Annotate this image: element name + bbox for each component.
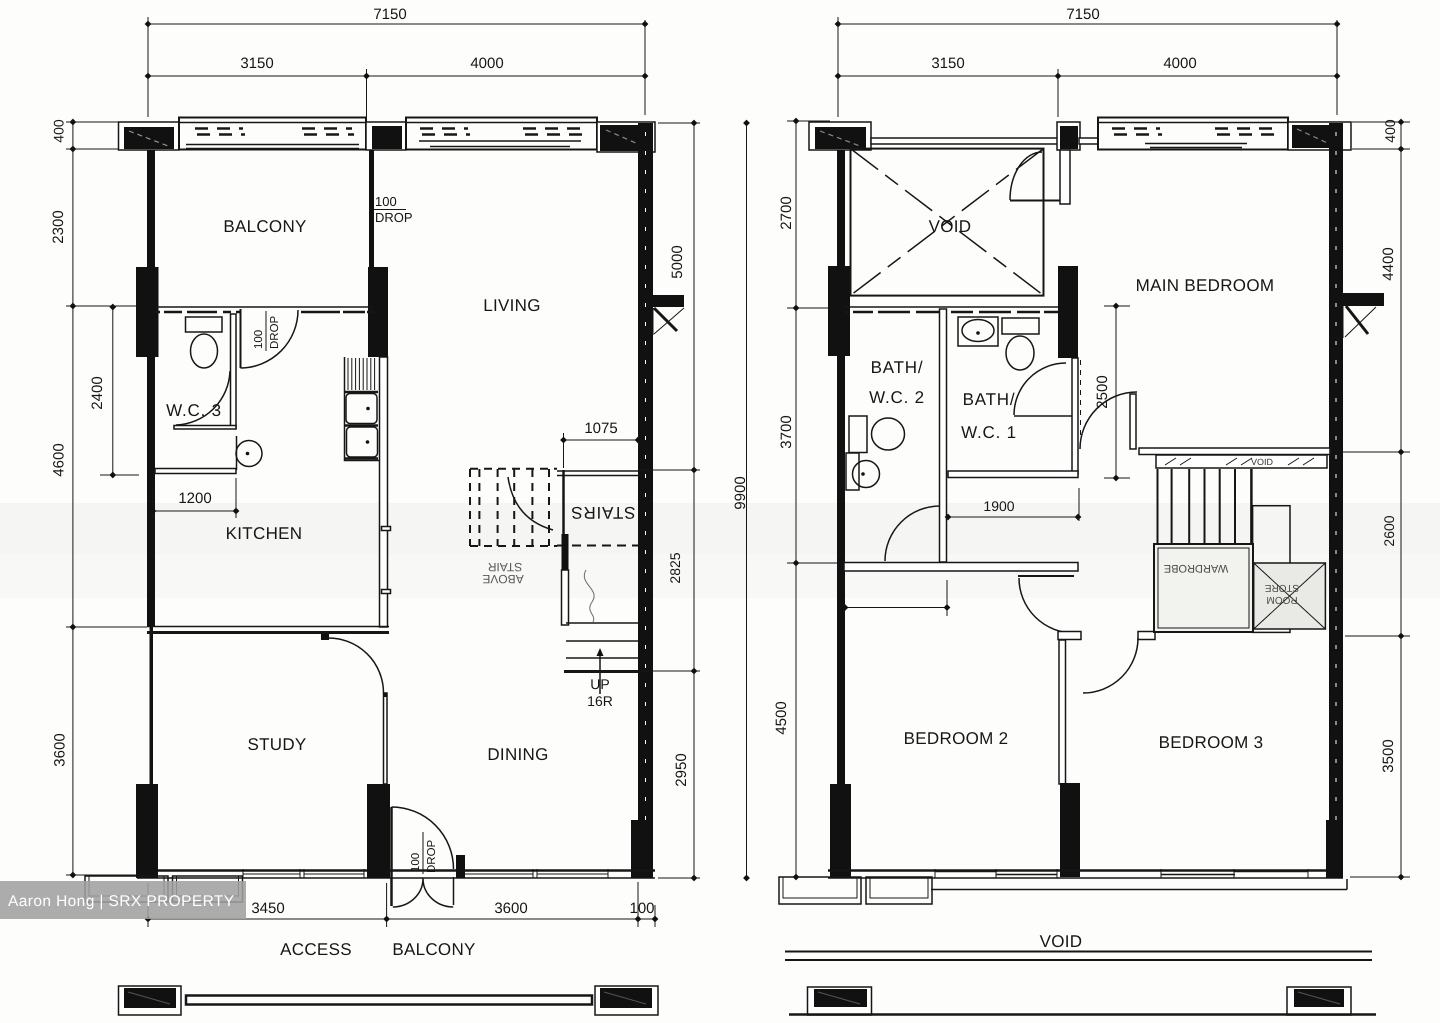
svg-text:BATH/: BATH/	[871, 358, 924, 377]
svg-text:100: 100	[253, 330, 265, 349]
svg-text:STAIRS: STAIRS	[571, 503, 636, 522]
svg-text:2400: 2400	[89, 376, 106, 409]
svg-text:3150: 3150	[931, 55, 964, 72]
svg-text:KITCHEN: KITCHEN	[226, 524, 303, 543]
svg-text:2825: 2825	[667, 552, 683, 583]
svg-text:2600: 2600	[1381, 515, 1397, 546]
svg-text:Aaron Hong | SRX PROPERTY: Aaron Hong | SRX PROPERTY	[8, 893, 235, 910]
svg-text:BEDROOM 2: BEDROOM 2	[904, 729, 1009, 748]
svg-text:BALCONY: BALCONY	[223, 217, 306, 236]
svg-text:1200: 1200	[178, 490, 211, 507]
svg-text:2300: 2300	[50, 210, 67, 243]
svg-text:W.C. 3: W.C. 3	[166, 401, 222, 420]
svg-text:ACCESS: ACCESS	[280, 940, 352, 959]
svg-text:3600: 3600	[494, 900, 527, 917]
svg-text:VOID: VOID	[1251, 457, 1274, 467]
svg-text:400: 400	[51, 119, 67, 143]
svg-text:7150: 7150	[373, 6, 406, 23]
svg-text:3500: 3500	[1380, 739, 1397, 772]
svg-text:W.C. 2: W.C. 2	[869, 388, 925, 407]
svg-text:4600: 4600	[51, 443, 68, 476]
svg-text:3700: 3700	[778, 415, 795, 448]
svg-text:DROP: DROP	[375, 210, 413, 225]
svg-text:100: 100	[629, 900, 654, 917]
svg-text:3600: 3600	[52, 733, 69, 766]
svg-text:1900: 1900	[983, 498, 1014, 514]
svg-text:2950: 2950	[673, 753, 690, 786]
svg-text:DINING: DINING	[487, 745, 548, 764]
svg-text:W.C. 1: W.C. 1	[961, 423, 1017, 442]
svg-text:16R: 16R	[587, 693, 613, 709]
svg-text:100: 100	[375, 194, 397, 209]
svg-text:WARDROBE: WARDROBE	[1164, 562, 1228, 574]
svg-text:DROP: DROP	[426, 839, 438, 873]
svg-text:100: 100	[410, 853, 422, 872]
svg-text:4500: 4500	[773, 701, 790, 734]
svg-text:LIVING: LIVING	[483, 296, 541, 315]
svg-text:3450: 3450	[251, 900, 284, 917]
svg-text:BALCONY: BALCONY	[392, 940, 475, 959]
svg-text:4400: 4400	[1380, 247, 1397, 280]
svg-text:ROOM: ROOM	[1266, 594, 1297, 605]
svg-text:9900: 9900	[732, 476, 749, 509]
svg-text:MAIN BEDROOM: MAIN BEDROOM	[1136, 276, 1275, 295]
svg-text:VOID: VOID	[929, 217, 972, 236]
svg-text:UP: UP	[590, 676, 609, 692]
svg-text:7150: 7150	[1066, 6, 1099, 23]
svg-text:ABOVE: ABOVE	[482, 572, 523, 586]
svg-text:VOID: VOID	[1040, 932, 1083, 951]
svg-text:3150: 3150	[240, 55, 273, 72]
svg-text:STORE: STORE	[1265, 582, 1300, 593]
svg-text:DROP: DROP	[269, 315, 281, 349]
svg-text:4000: 4000	[1163, 55, 1196, 72]
svg-text:BATH/: BATH/	[963, 390, 1016, 409]
svg-text:4000: 4000	[470, 55, 503, 72]
svg-text:STAIR: STAIR	[487, 560, 522, 574]
svg-text:5000: 5000	[669, 245, 686, 278]
svg-text:400: 400	[1382, 119, 1398, 143]
svg-text:1075: 1075	[584, 420, 617, 437]
svg-text:2700: 2700	[778, 196, 795, 229]
svg-text:BEDROOM 3: BEDROOM 3	[1159, 733, 1264, 752]
svg-text:STUDY: STUDY	[247, 735, 306, 754]
